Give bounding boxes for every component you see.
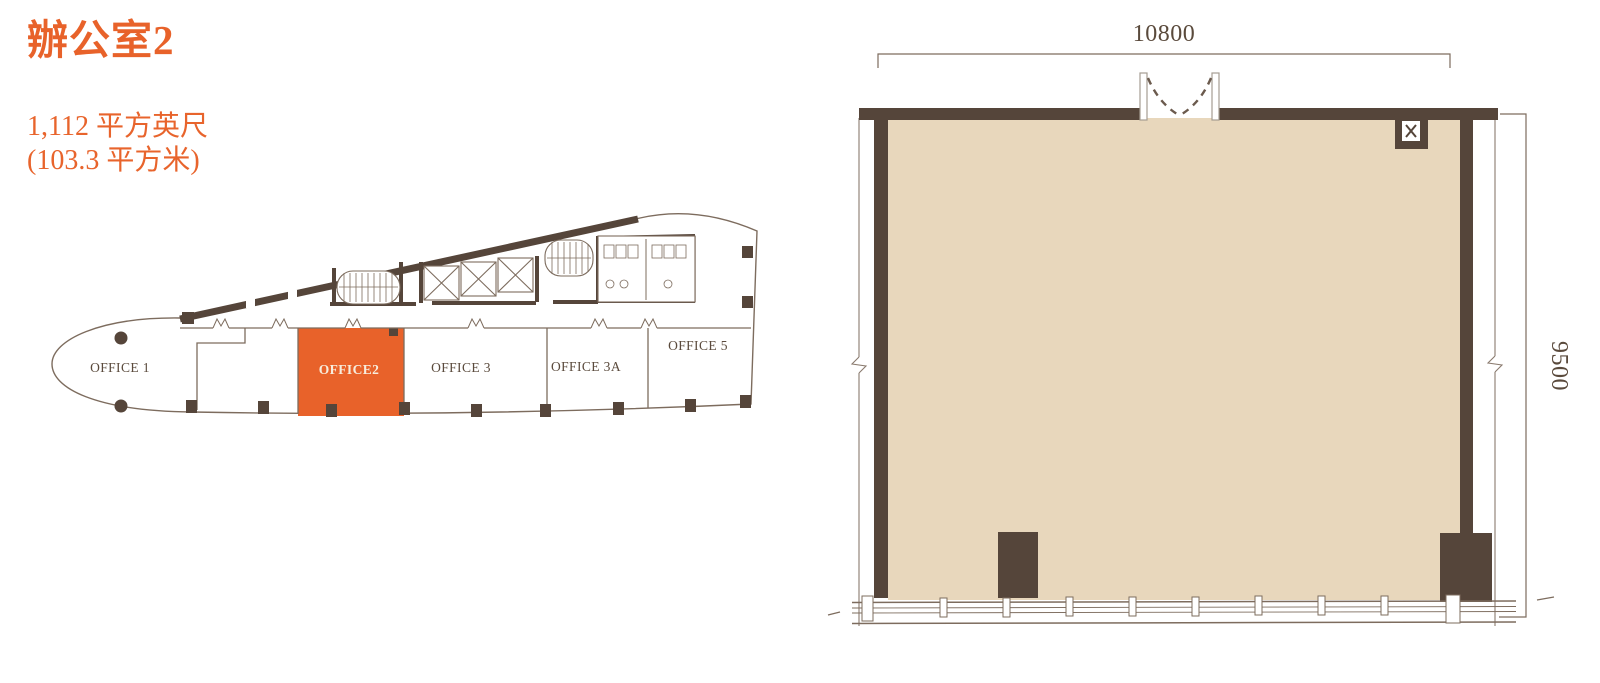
dimension-line-top: [878, 54, 1450, 68]
window-wall: [828, 597, 1554, 624]
unit-plan: 10800 9500: [810, 0, 1600, 683]
dimension-line-right: [1499, 114, 1526, 617]
column: [389, 328, 398, 336]
riser-duct-marker: [1395, 118, 1428, 149]
area-sqm: (103.3 平方米): [27, 144, 208, 178]
floor-plan-sheet: 辦公室2 1,112 平方英尺 (103.3 平方米): [0, 0, 1600, 683]
door-jamb: [1212, 73, 1219, 120]
page-title: 辦公室2: [27, 18, 208, 63]
dimension-width: 10800: [1133, 21, 1196, 47]
unit-label-office5: OFFICE 5: [668, 338, 728, 353]
door-swing-icon: [1148, 78, 1211, 114]
column: [998, 532, 1038, 598]
header: 辦公室2 1,112 平方英尺 (103.3 平方米): [27, 18, 208, 178]
column: [182, 312, 194, 324]
area-sqft: 1,112 平方英尺: [27, 110, 208, 144]
unit-label-office2: OFFICE2: [319, 362, 380, 377]
entrance-door: [1140, 73, 1219, 120]
unit-label-office1: OFFICE 1: [90, 360, 150, 375]
door-jamb: [1140, 73, 1147, 120]
staircase: [337, 271, 400, 304]
dimension-height: 9500: [1546, 341, 1572, 391]
wall-window-gap: [246, 299, 255, 308]
column: [1440, 533, 1492, 602]
wall-window-gap: [288, 290, 297, 299]
unit-label-office3a: OFFICE 3A: [551, 359, 621, 374]
break-tick: [828, 612, 840, 615]
toilet-block: [598, 236, 695, 302]
unit-label-office3: OFFICE 3: [431, 360, 491, 375]
key-plan: OFFICE 1 OFFICE2 OFFICE 3 OFFICE 3A OFFI…: [30, 190, 790, 440]
staircase: [545, 240, 593, 276]
break-tick: [1537, 597, 1554, 600]
unit-floor: [888, 118, 1460, 600]
